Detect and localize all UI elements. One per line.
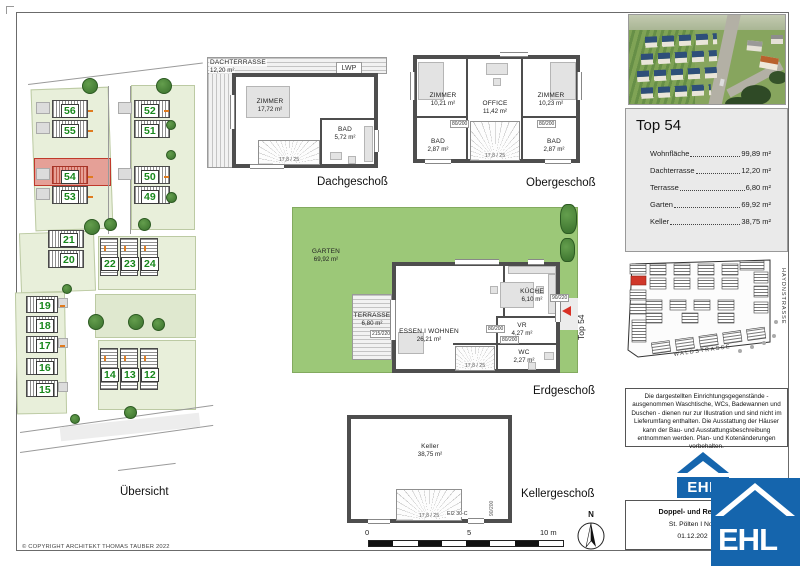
street-line [108,86,109,234]
dg-inner-wall [320,118,376,120]
entry-mark [104,246,106,251]
eg-garten-label: GARTEN 69,92 m² [300,248,352,263]
tree [156,78,172,94]
street-label: HAYDNSTRASSE [780,268,786,325]
lot-number: 53 [61,190,79,204]
lot-number: 24 [141,257,159,271]
driveway [118,102,132,114]
driveway [36,102,50,114]
og-room-zimmer2: ZIMMER 10,23 m² [528,92,574,107]
lot-number: 56 [61,104,79,118]
disclaimer-text: Die dargestellten Einrichtungsgegenständ… [626,389,787,456]
kg-window [368,519,390,524]
og-inner-wall [523,116,578,118]
eg-inner-wall [498,316,558,318]
lot-number: 18 [36,319,54,333]
eg-wc-fixture [544,352,554,360]
dg-bath-sink [330,152,342,160]
eg-terrasse-label: TERRASSE 6,80 m² [351,312,393,327]
corner-tick [6,6,7,14]
driveway [58,382,68,392]
driveway [36,122,50,134]
ehl-logo-large: EHL [711,478,800,566]
kg-door-dim: 90/200 [489,501,495,516]
eg-chair [490,286,498,294]
scale-end: 10 m [540,528,557,537]
og-door-dim: 80/200 [450,120,469,128]
driveway [36,168,50,180]
tree [70,414,80,424]
eg-room-wohnen: ESSEN I WOHNEN 26,21 m² [398,328,460,343]
driveway [36,188,50,200]
dg-window [374,130,379,152]
og-desk [486,63,508,75]
eg-terrace-door [390,300,396,340]
og-chair [493,78,501,86]
corner-tick [6,6,14,7]
tree [104,218,117,231]
lot-number: 12 [141,368,159,382]
entry-mark [164,176,169,178]
tree [166,150,176,160]
eg-room-wc: WC 2,27 m² [506,349,542,364]
eg-door-dim: 80/200 [500,336,519,344]
tree [82,78,98,94]
entry-mark [60,305,65,307]
garden-shrub [560,238,575,262]
garden-shrub [560,204,577,234]
eg-door-gap [528,259,544,265]
ehl-logo-text: EHL [718,522,777,558]
og-room-zimmer1: ZIMMER 10,21 m² [420,92,466,107]
lot-number: 22 [101,257,119,271]
og-window [425,159,451,164]
og-room-bad2: BAD 2,87 m² [534,138,574,153]
tree [138,218,151,231]
north-label: N [588,510,594,519]
lot-number: 13 [121,368,139,382]
tree [152,318,165,331]
lot-number: 55 [61,124,79,138]
tree [62,284,72,294]
og-window [410,72,415,100]
og-window [577,72,582,100]
og-door-dim: 80/200 [537,120,556,128]
kg-door-gap [468,518,484,524]
entry-mark [144,246,146,251]
lot-number: 51 [141,124,159,138]
unit-info-panel: Top 54 Wohnfläche99,89 m² Dachterrasse12… [625,108,788,252]
entry-mark [164,110,169,112]
dg-window [250,164,284,169]
og-stairs: 17,8 / 25 [470,121,520,161]
og-room-office: OFFICE 11,42 m² [470,100,520,115]
eg-terrace-dim: 215/220 [370,330,392,338]
lot-number: 17 [36,339,54,353]
lot-number: 49 [141,190,159,204]
og-floor-label: Obergeschoß [526,177,596,189]
lot-number: 23 [121,257,139,271]
dg-window [230,95,235,129]
entry-mark [60,345,65,347]
entry-arrow-icon [562,306,571,316]
tree [88,314,104,330]
dg-bath-tub [364,126,373,162]
og-inner-wall [466,59,468,159]
lot-number: 52 [141,104,159,118]
keymap-highlighted-unit [631,276,646,285]
scale-mid: 5 [467,528,471,537]
dg-inner-wall [320,118,322,166]
overview-label: Übersicht [120,486,169,498]
aerial-photo [628,14,786,105]
lot-number: 20 [60,253,78,267]
unit-panel-title: Top 54 [626,109,787,134]
dg-room-zimmer: ZIMMER 17,72 m² [245,98,295,113]
tree [166,192,177,203]
eg-room-kueche: KÜCHE 6,10 m² [510,288,554,303]
tree [124,406,137,419]
og-window [500,52,528,57]
site-key-map: HAYDNSTRASSE WALDSTRASSE [622,256,788,362]
list-item: Wohnfläche99,89 m² [650,149,771,158]
eg-unit-marker: Top 54 [576,314,586,340]
entry-mark [88,130,93,132]
dg-terrace-label: DACHTERRASSE [209,59,267,67]
eg-inner-wall [453,343,497,345]
lot-number: 16 [36,361,54,375]
lot-number: 15 [36,383,54,397]
scale-start: 0 [365,528,369,537]
og-room-bad1: BAD 2,87 m² [418,138,458,153]
copyright: © COPYRIGHT ARCHITEKT THOMAS TAUBER 2022 [22,544,170,550]
og-inner-wall [417,116,466,118]
lot-number: 19 [36,299,54,313]
entry-mark [124,246,126,251]
driveway [118,168,132,180]
eg-window [455,259,499,265]
lot-number: 50 [141,170,159,184]
eg-entry-gap [555,302,561,322]
disclaimer-box: Die dargestellten Einrichtungsgegenständ… [625,388,788,447]
tree [84,219,100,235]
list-item: Keller38,75 m² [650,217,771,226]
eg-kitchen-counter [508,266,556,274]
list-item: Garten69,92 m² [650,200,771,209]
dg-terrace-name: DACHTERRASSE [210,59,266,67]
og-inner-wall [521,59,523,159]
entry-mark [88,196,93,198]
lot-number-highlighted: 54 [61,170,79,184]
entry-mark [88,110,93,112]
entry-mark [104,356,106,361]
og-window [545,159,571,164]
plan-sheet-page: { "sheet": { "copyright": "© COPYRIGHT A… [0,0,800,566]
list-item: Dachterrasse12,20 m² [650,166,771,175]
lot-number: 14 [101,368,119,382]
eg-terrace [352,294,392,360]
entry-mark [144,356,146,361]
eg-floor-label: Erdgeschoß [533,385,595,397]
scale-bar [368,540,564,547]
tree [166,120,176,130]
kg-room-keller: Keller 38,75 m² [405,443,455,458]
tree [128,314,144,330]
eg-door-dim: 80/200 [486,325,505,333]
dg-room-bad: BAD 5,72 m² [328,126,362,141]
eg-stairs: 17,8 / 25 [455,346,495,371]
dg-floor-label: Dachgeschoß [317,176,388,188]
kg-door-type: EI2 30-C [446,511,468,517]
dg-bath-wc [348,156,356,164]
north-compass-icon: N [572,508,610,554]
entry-mark [124,356,126,361]
lot-number: 21 [60,233,78,247]
entry-mark [88,176,93,178]
eg-room-vr: VR 4,27 m² [504,322,540,337]
list-item: Terrasse6,80 m² [650,183,771,192]
unit-area-list: Wohnfläche99,89 m² Dachterrasse12,20 m² … [626,134,787,226]
dg-stairs: 17,8 / 25 [258,140,320,165]
kg-floor-label: Kellergeschoß [521,488,595,500]
parcel [95,294,196,338]
eg-entry-dim: 90/220 [550,294,569,302]
